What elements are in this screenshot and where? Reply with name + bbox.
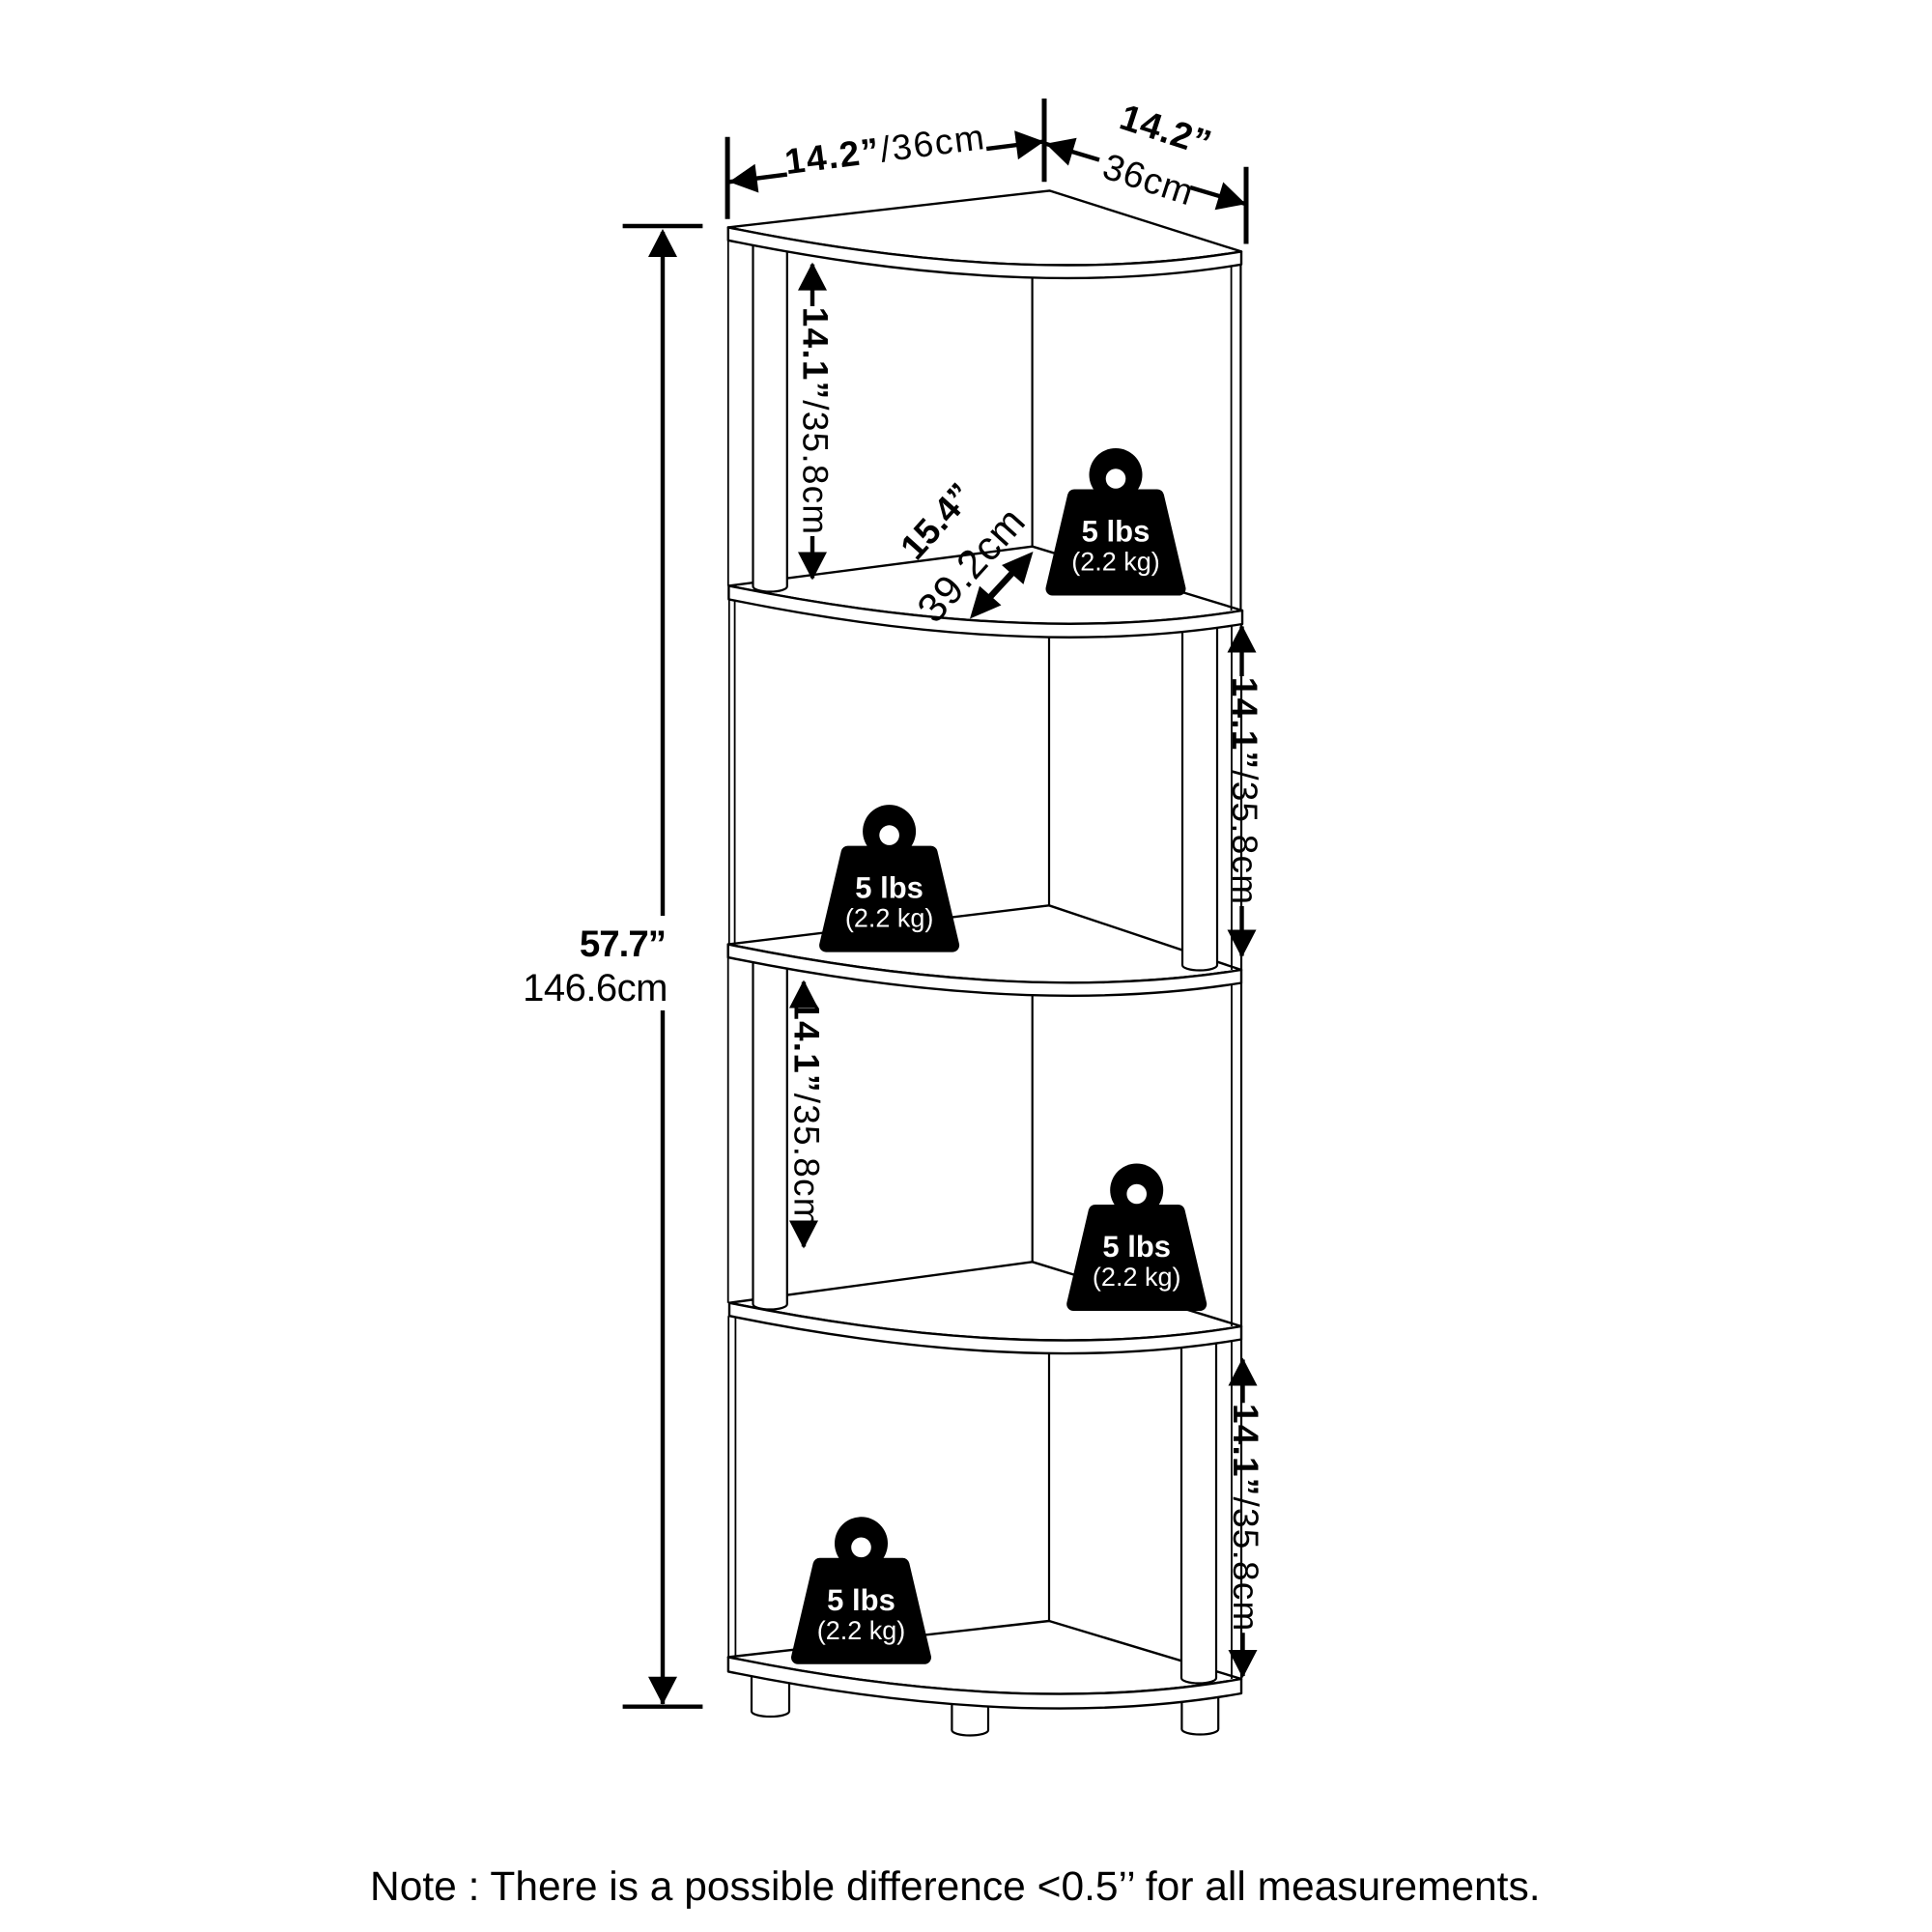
svg-text:14.1”/35.8cm: 14.1”/35.8cm	[796, 307, 836, 536]
svg-text:(2.2 kg): (2.2 kg)	[845, 904, 934, 933]
svg-text:146.6cm: 146.6cm	[523, 967, 668, 1009]
svg-text:(2.2 kg): (2.2 kg)	[1093, 1263, 1181, 1292]
svg-text:57.7”: 57.7”	[580, 923, 666, 965]
svg-text:5 lbs: 5 lbs	[1082, 515, 1151, 549]
svg-text:(2.2 kg): (2.2 kg)	[817, 1616, 906, 1645]
svg-text:14.1”/35.8cm: 14.1”/35.8cm	[787, 1000, 827, 1229]
svg-text:Note : There is a possible dif: Note : There is a possible difference <0…	[370, 1864, 1541, 1910]
svg-text:5 lbs: 5 lbs	[1102, 1230, 1171, 1264]
svg-text:5 lbs: 5 lbs	[855, 871, 923, 905]
svg-text:(2.2 kg): (2.2 kg)	[1071, 548, 1160, 577]
svg-text:5 lbs: 5 lbs	[827, 1583, 895, 1617]
svg-text:14.1”/35.8cm: 14.1”/35.8cm	[1225, 677, 1264, 906]
svg-text:14.1”/35.8cm: 14.1”/35.8cm	[1226, 1404, 1265, 1633]
